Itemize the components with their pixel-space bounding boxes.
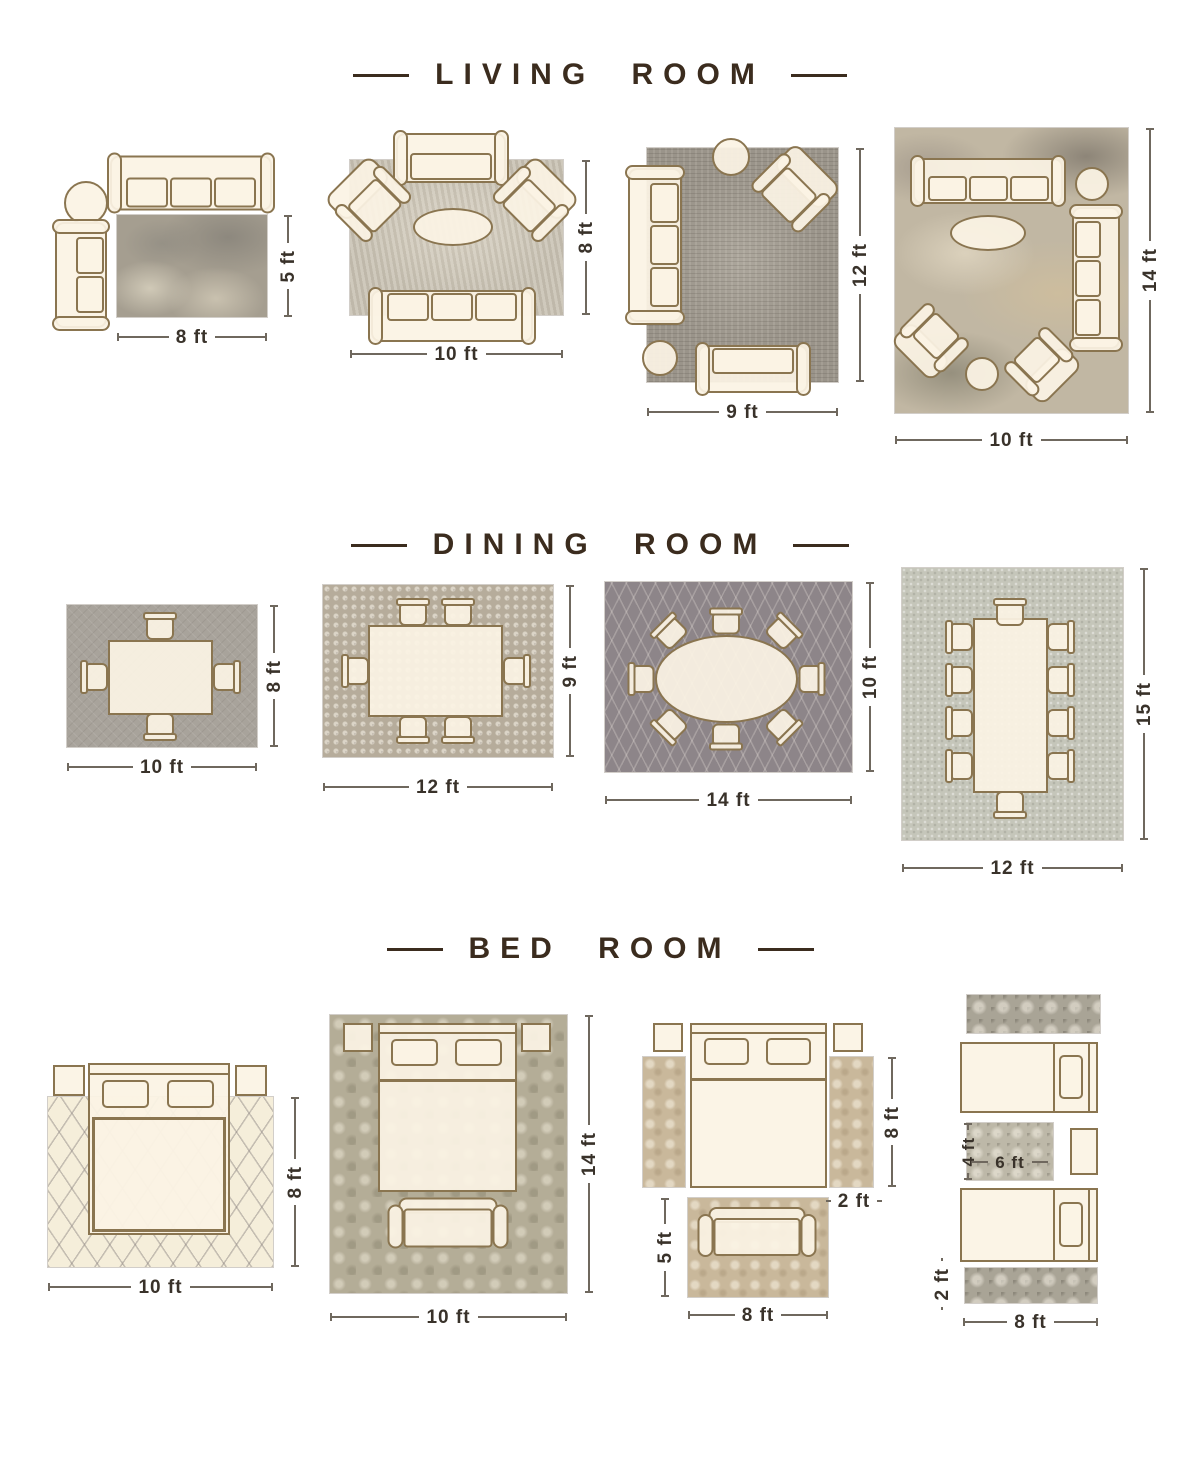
- title-dash: [791, 74, 847, 77]
- dining-chair: [1046, 708, 1076, 738]
- dining-chair: [145, 612, 175, 640]
- dining-table: [368, 625, 503, 717]
- width-dimension-label: 12 ft: [983, 859, 1041, 878]
- section-title-dining-room: DINING ROOM: [0, 528, 1200, 562]
- runner-rug: [965, 1268, 1097, 1303]
- dining-chair: [1046, 751, 1076, 781]
- runner-height-dimension-label: 8 ft: [883, 1099, 902, 1146]
- dining-chair: [711, 723, 741, 751]
- dining-chair: [1046, 665, 1076, 695]
- dining-chair: [797, 664, 827, 694]
- runner-rug: [643, 1057, 685, 1187]
- dining-chair: [768, 618, 798, 646]
- dining-chair: [1046, 622, 1076, 652]
- width-dimension: 9 ft: [647, 400, 838, 424]
- sofa: [913, 158, 1063, 204]
- width-dimension: 10 ft: [67, 755, 257, 779]
- width-dimension-label: 14 ft: [699, 791, 757, 810]
- nightstand: [53, 1065, 85, 1096]
- loveseat: [55, 222, 107, 328]
- dining-chair: [995, 598, 1025, 626]
- width-dimension-label: 8 ft: [169, 328, 216, 347]
- width-dimension: 14 ft: [605, 788, 852, 812]
- foot-rug-width-dimension: 8 ft: [688, 1303, 828, 1327]
- width-dimension: 10 ft: [330, 1305, 567, 1329]
- height-dimension: 8 ft: [574, 160, 598, 315]
- width-dimension-label: 10 ft: [982, 431, 1040, 450]
- runner-height-dimension-label: 2 ft: [933, 1261, 952, 1308]
- title-dash: [353, 74, 409, 77]
- dining-chair: [398, 716, 428, 744]
- dining-chair: [145, 713, 175, 741]
- twin-bed: [960, 1042, 1098, 1113]
- dining-chair: [944, 708, 974, 738]
- title-dash: [793, 544, 849, 547]
- armchair: [898, 310, 962, 374]
- width-dimension: 10 ft: [350, 342, 563, 366]
- rug-size-guide: LIVING ROOM 5 ft: [0, 0, 1200, 1467]
- accent-rug-width-dimension-label: 6 ft: [988, 1154, 1032, 1171]
- height-dimension-label: 15 ft: [1135, 675, 1154, 733]
- dining-table: [108, 640, 213, 715]
- height-dimension-label: 8 ft: [577, 214, 596, 261]
- dining-chair: [443, 716, 473, 744]
- sofa: [628, 168, 682, 322]
- side-table: [965, 357, 999, 391]
- coffee-table: [413, 208, 493, 246]
- dining-chair: [79, 662, 109, 692]
- height-dimension-label: 9 ft: [561, 648, 580, 695]
- width-dimension: 12 ft: [323, 775, 553, 799]
- height-dimension: 14 ft: [577, 1015, 601, 1293]
- foot-rug-height-dimension-label: 5 ft: [656, 1224, 675, 1271]
- armchair: [758, 150, 834, 226]
- accent-rug-width-dimension: 6 ft: [972, 1150, 1048, 1174]
- bed: [88, 1063, 230, 1235]
- dining-chair: [655, 618, 685, 646]
- nightstand: [343, 1023, 373, 1052]
- armchair: [500, 163, 572, 235]
- height-dimension-label: 8 ft: [265, 653, 284, 700]
- dining-chair: [768, 712, 798, 740]
- dining-table-oval: [655, 635, 798, 723]
- width-dimension-label: 10 ft: [133, 758, 191, 777]
- dining-chair: [995, 791, 1025, 819]
- section-title-text: BED ROOM: [469, 932, 732, 966]
- height-dimension-label: 14 ft: [580, 1125, 599, 1183]
- runner-width-dimension-label: 8 ft: [1007, 1313, 1054, 1332]
- height-dimension-label: 8 ft: [286, 1159, 305, 1206]
- dining-chair: [626, 664, 656, 694]
- side-table: [642, 340, 678, 376]
- width-dimension-label: 10 ft: [131, 1278, 189, 1297]
- bed: [690, 1023, 827, 1188]
- runner-width-dimension-label: 2 ft: [831, 1192, 878, 1211]
- height-dimension-label: 14 ft: [1141, 241, 1160, 299]
- armchair: [1010, 333, 1076, 399]
- bed: [378, 1023, 517, 1192]
- loveseat: [698, 345, 808, 393]
- sofa: [396, 133, 506, 183]
- twin-bed: [960, 1188, 1098, 1262]
- width-dimension: 12 ft: [902, 856, 1123, 880]
- runner-height-dimension: 8 ft: [880, 1057, 904, 1187]
- coffee-table: [950, 215, 1026, 251]
- height-dimension-label: 5 ft: [279, 243, 298, 290]
- sofa: [371, 290, 533, 342]
- height-dimension: 10 ft: [858, 582, 882, 772]
- width-dimension: 10 ft: [895, 428, 1128, 452]
- height-dimension: 12 ft: [848, 148, 872, 382]
- dining-chair: [212, 662, 242, 692]
- width-dimension: 10 ft: [48, 1275, 273, 1299]
- width-dimension-label: 9 ft: [719, 403, 766, 422]
- height-dimension-label: 10 ft: [861, 648, 880, 706]
- runner-height-dimension: 2 ft: [930, 1258, 954, 1310]
- side-table: [1075, 167, 1109, 201]
- height-dimension: 5 ft: [276, 215, 300, 317]
- sofa: [1072, 207, 1120, 349]
- width-dimension: 8 ft: [117, 325, 267, 349]
- width-dimension-label: 12 ft: [409, 778, 467, 797]
- nightstand: [521, 1023, 551, 1052]
- runner-width-dimension: 8 ft: [963, 1310, 1098, 1334]
- foot-rug-width-dimension-label: 8 ft: [735, 1306, 782, 1325]
- height-dimension-label: 12 ft: [851, 236, 870, 294]
- bench: [700, 1207, 813, 1257]
- width-dimension-label: 10 ft: [419, 1308, 477, 1327]
- nightstand: [833, 1023, 863, 1052]
- dining-chair: [655, 712, 685, 740]
- dining-chair: [502, 656, 532, 686]
- bench: [390, 1197, 505, 1248]
- armchair: [332, 163, 404, 235]
- title-dash: [351, 544, 407, 547]
- section-title-bed-room: BED ROOM: [0, 932, 1200, 966]
- runner-rug: [967, 995, 1100, 1033]
- dining-chair: [944, 622, 974, 652]
- dining-chair: [340, 656, 370, 686]
- dining-table: [973, 618, 1048, 793]
- height-dimension: 15 ft: [1132, 568, 1156, 840]
- foot-rug-height-dimension: 5 ft: [653, 1198, 677, 1297]
- rug: [117, 215, 267, 317]
- nightstand: [1070, 1128, 1098, 1175]
- dining-chair: [443, 598, 473, 626]
- runner-width-dimension: 2 ft: [826, 1189, 882, 1213]
- height-dimension: 8 ft: [262, 605, 286, 747]
- runner-rug: [830, 1057, 873, 1187]
- section-title-text: LIVING ROOM: [435, 58, 765, 92]
- dining-chair: [711, 607, 741, 635]
- nightstand: [235, 1065, 267, 1096]
- section-title-text: DINING ROOM: [433, 528, 768, 562]
- title-dash: [387, 948, 443, 951]
- height-dimension: 9 ft: [558, 585, 582, 757]
- section-title-living-room: LIVING ROOM: [0, 58, 1200, 92]
- dining-chair: [398, 598, 428, 626]
- width-dimension-label: 10 ft: [427, 345, 485, 364]
- side-table: [712, 138, 750, 176]
- nightstand: [653, 1023, 683, 1052]
- dining-chair: [944, 665, 974, 695]
- title-dash: [758, 948, 814, 951]
- height-dimension: 8 ft: [283, 1097, 307, 1267]
- sofa: [110, 155, 272, 210]
- height-dimension: 14 ft: [1138, 128, 1162, 413]
- dining-chair: [944, 751, 974, 781]
